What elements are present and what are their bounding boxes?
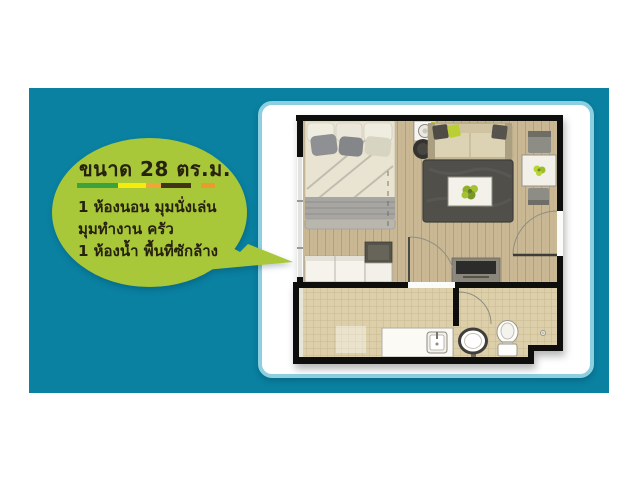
floorplan-image — [293, 111, 567, 369]
stripe-segment — [201, 183, 215, 188]
description-line-1: 1 ห้องนอน มุมนั่งเล่น — [78, 196, 238, 218]
laundry-counter — [382, 328, 453, 357]
size-stripe — [77, 183, 215, 188]
bed — [305, 121, 395, 229]
stripe-segment — [146, 183, 161, 188]
blanket — [305, 197, 395, 229]
laundry-sink — [427, 332, 447, 353]
storage-cabinet — [365, 242, 392, 282]
stripe-segment — [118, 183, 146, 188]
unit-description: 1 ห้องนอน มุมนั่งเล่น มุมทำงาน ครัว 1 ห้… — [78, 196, 238, 262]
description-line-3: 1 ห้องน้ำ พื้นที่ซักล้าง — [78, 240, 238, 262]
stripe-segment — [191, 183, 201, 188]
dining-table — [522, 155, 556, 186]
toilet — [497, 321, 518, 357]
sofa — [428, 123, 512, 162]
stripe-segment — [161, 183, 191, 188]
floor-drain — [541, 331, 546, 336]
wardrobe — [305, 256, 365, 282]
tv-console — [452, 258, 500, 283]
coffee-table — [448, 177, 492, 206]
description-line-2: มุมทำงาน ครัว — [78, 218, 238, 240]
unit-size-title: ขนาด 28 ตร.ม. — [79, 153, 239, 185]
stripe-segment — [77, 183, 118, 188]
pillows — [307, 123, 392, 157]
